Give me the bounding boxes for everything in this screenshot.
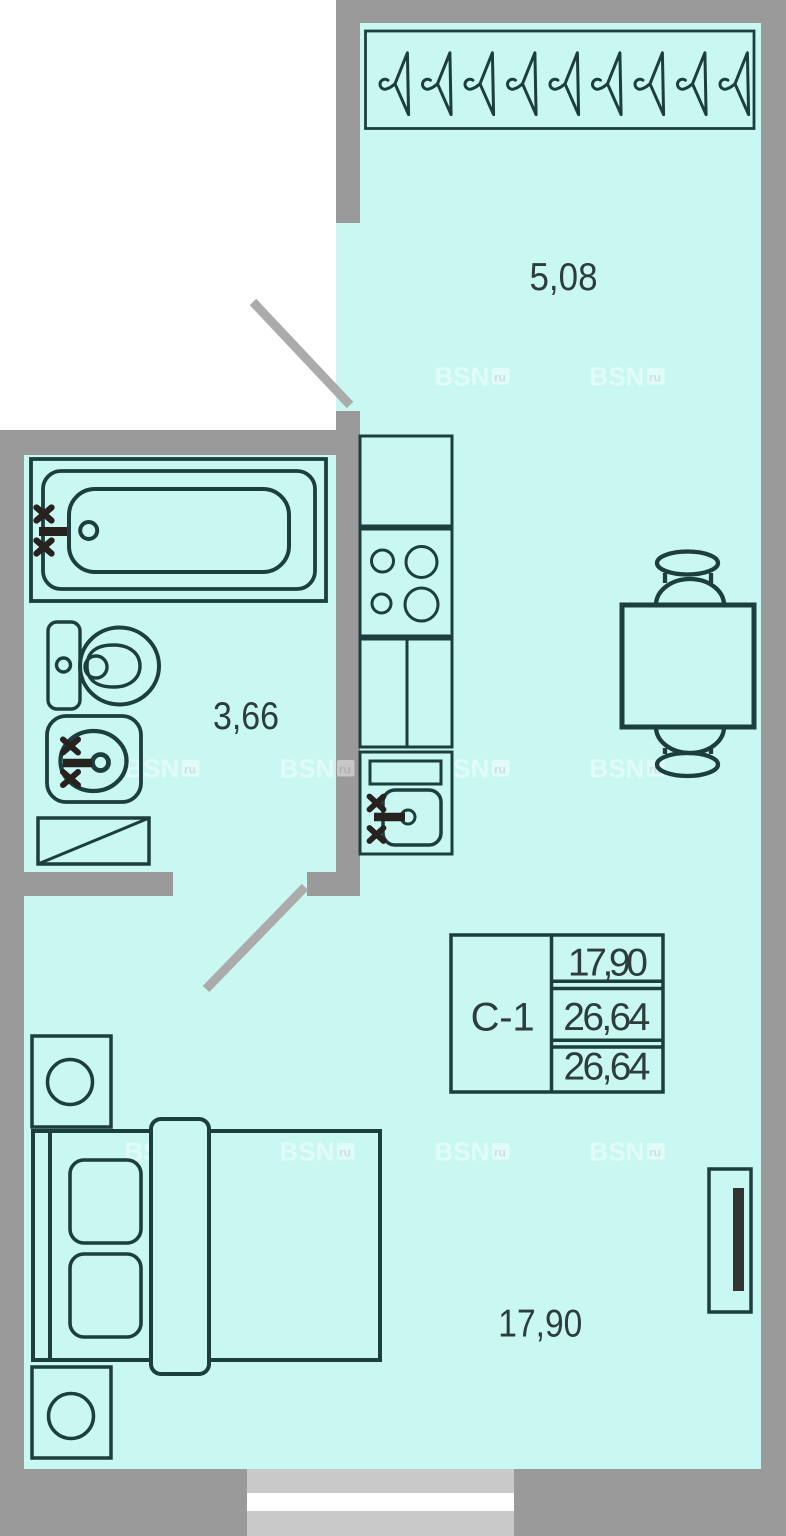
svg-text:BSN: BSN [590,1137,645,1167]
svg-text:ru: ru [339,763,351,777]
svg-text:17,90: 17,90 [568,942,648,985]
svg-text:BSN: BSN [590,754,645,784]
svg-text:26,64: 26,64 [564,1046,651,1089]
svg-text:С-1: С-1 [471,996,535,1040]
svg-text:ru: ru [649,371,661,385]
svg-text:BSN: BSN [590,362,645,392]
svg-text:5,08: 5,08 [530,256,598,299]
svg-text:ru: ru [184,763,196,777]
svg-text:BSN: BSN [125,754,180,784]
svg-text:ru: ru [494,371,506,385]
svg-text:ru: ru [649,1146,661,1160]
svg-text:BSN: BSN [435,1137,490,1167]
svg-text:ru: ru [494,763,506,777]
svg-text:BSN: BSN [280,754,335,784]
svg-text:BSN: BSN [435,362,490,392]
svg-text:26,64: 26,64 [563,996,650,1039]
svg-text:ru: ru [339,1146,351,1160]
svg-text:3,66: 3,66 [213,695,279,738]
svg-text:BSN: BSN [280,1137,335,1167]
svg-text:ru: ru [494,1146,506,1160]
svg-text:17,90: 17,90 [498,1303,582,1346]
